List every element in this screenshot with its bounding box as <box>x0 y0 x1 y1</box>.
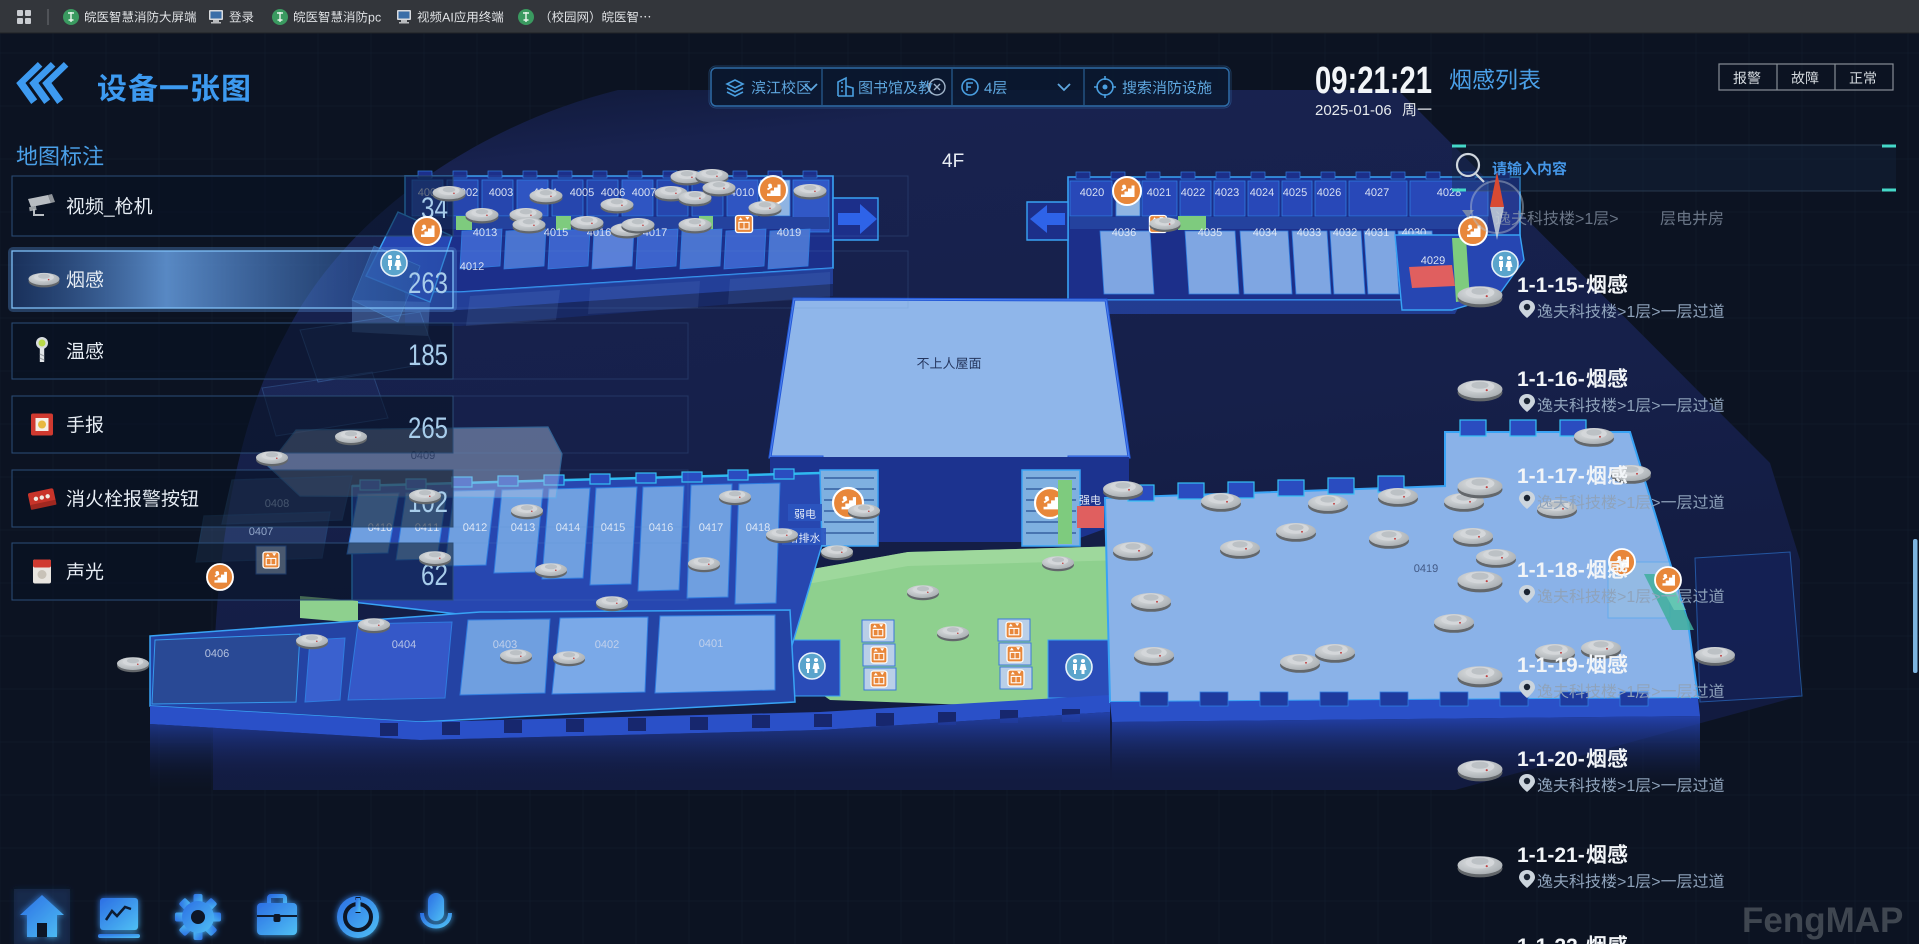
svg-text:1-1-16-: 1-1-16- <box>1517 368 1585 391</box>
svg-text:FengMAP: FengMAP <box>1742 901 1903 940</box>
svg-text:265: 265 <box>408 412 448 445</box>
svg-text:4F: 4F <box>942 151 964 172</box>
svg-text:1-1-15-: 1-1-15- <box>1517 274 1585 297</box>
svg-text:263: 263 <box>408 267 448 300</box>
svg-text:185: 185 <box>408 339 448 372</box>
svg-text:1-1-19-: 1-1-19- <box>1517 654 1585 677</box>
svg-text:1-1-20-: 1-1-20- <box>1517 748 1585 771</box>
svg-text:1-1-21-: 1-1-21- <box>1517 844 1585 867</box>
svg-text:1-1-18-: 1-1-18- <box>1517 559 1585 582</box>
svg-text:2025-01-06: 2025-01-06 <box>1315 102 1392 119</box>
svg-text:09:21:21: 09:21:21 <box>1315 60 1432 102</box>
svg-text:1-1-22-: 1-1-22- <box>1517 935 1585 944</box>
svg-text:1-1-17-: 1-1-17- <box>1517 465 1585 488</box>
